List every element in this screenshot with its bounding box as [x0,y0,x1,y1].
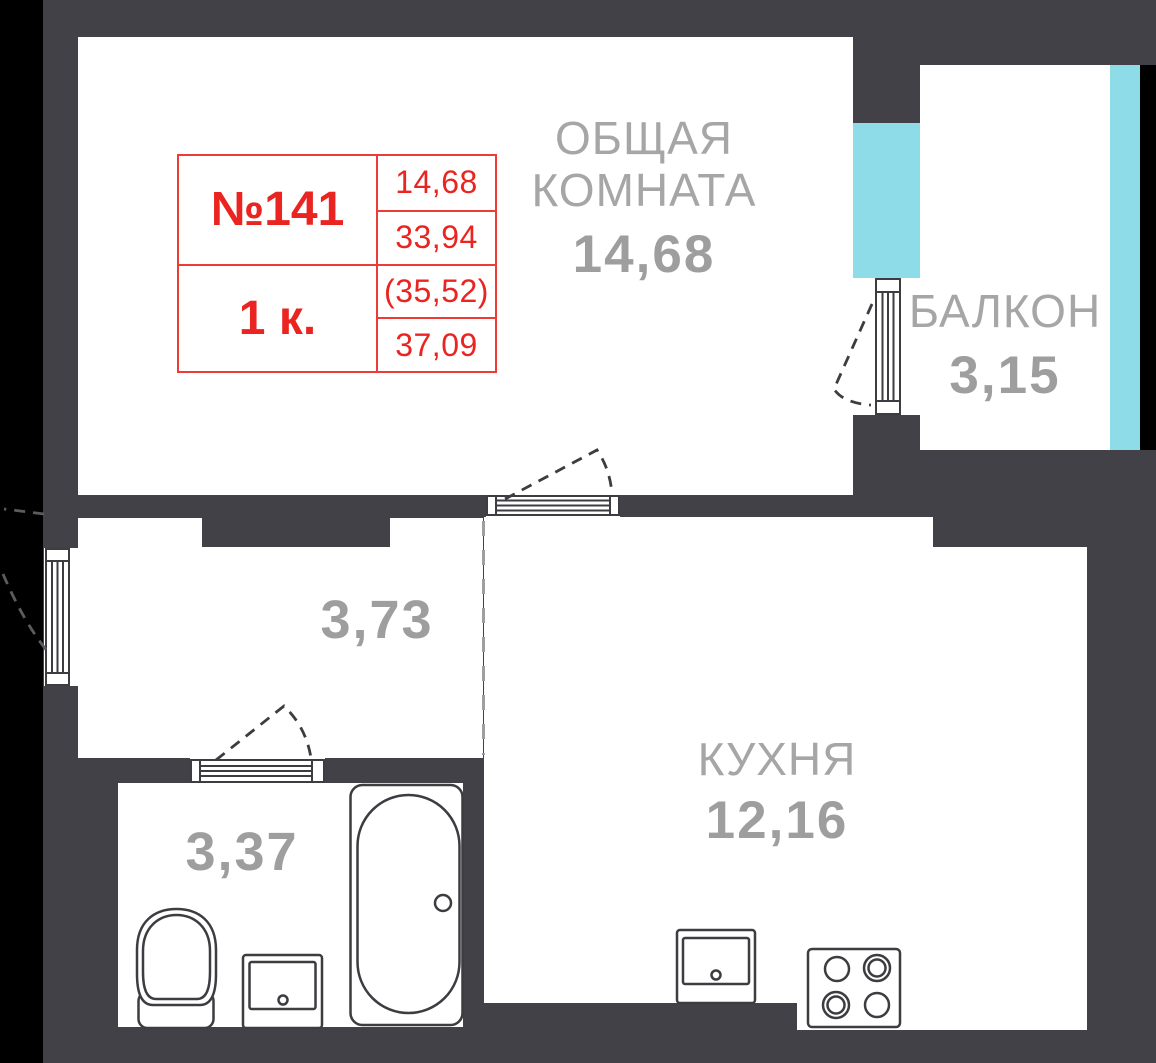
balcony-label: БАЛКОН 3,15 [855,285,1155,406]
living-room-label: ОБЩАЯ КОМНАТА 14,68 [494,112,794,285]
balcony-area: 3,15 [855,345,1155,406]
bathroom-area: 3,37 [142,821,342,883]
apartment-info-table: №141 14,68 33,94 1 к. (35,52) 37,09 [177,154,497,373]
window-living-balcony [853,123,920,278]
apartment-number: №141 [179,156,378,264]
wall-hallway-step [202,518,390,547]
bathroom-floor [118,783,463,1027]
area-value-general: 33,94 [378,210,495,264]
balcony-name: БАЛКОН [855,285,1155,337]
living-room-area: 14,68 [494,224,794,285]
kitchen-name: КУХНЯ [627,733,927,785]
area-value-reduced: (35,52) [378,264,495,318]
floor-plan: ОБЩАЯ КОМНАТА 14,68 БАЛКОН 3,15 КУХНЯ 12… [0,0,1156,1063]
area-value-living: 14,68 [378,156,495,210]
opening-bathroom-door [190,758,325,783]
area-value-total: 37,09 [378,317,495,371]
kitchen-floor-step [797,1003,1087,1030]
kitchen-label: КУХНЯ 12,16 [627,733,927,851]
opening-entrance-door [44,548,78,686]
exterior-edge-left [0,0,43,1063]
rooms-count: 1 к. [179,264,378,372]
kitchen-area: 12,16 [627,790,927,851]
wall-kitchen-notch [933,517,1087,547]
living-room-name: ОБЩАЯ КОМНАТА [494,112,794,216]
hallway-area: 3,73 [277,589,477,651]
opening-living-door [486,495,620,517]
